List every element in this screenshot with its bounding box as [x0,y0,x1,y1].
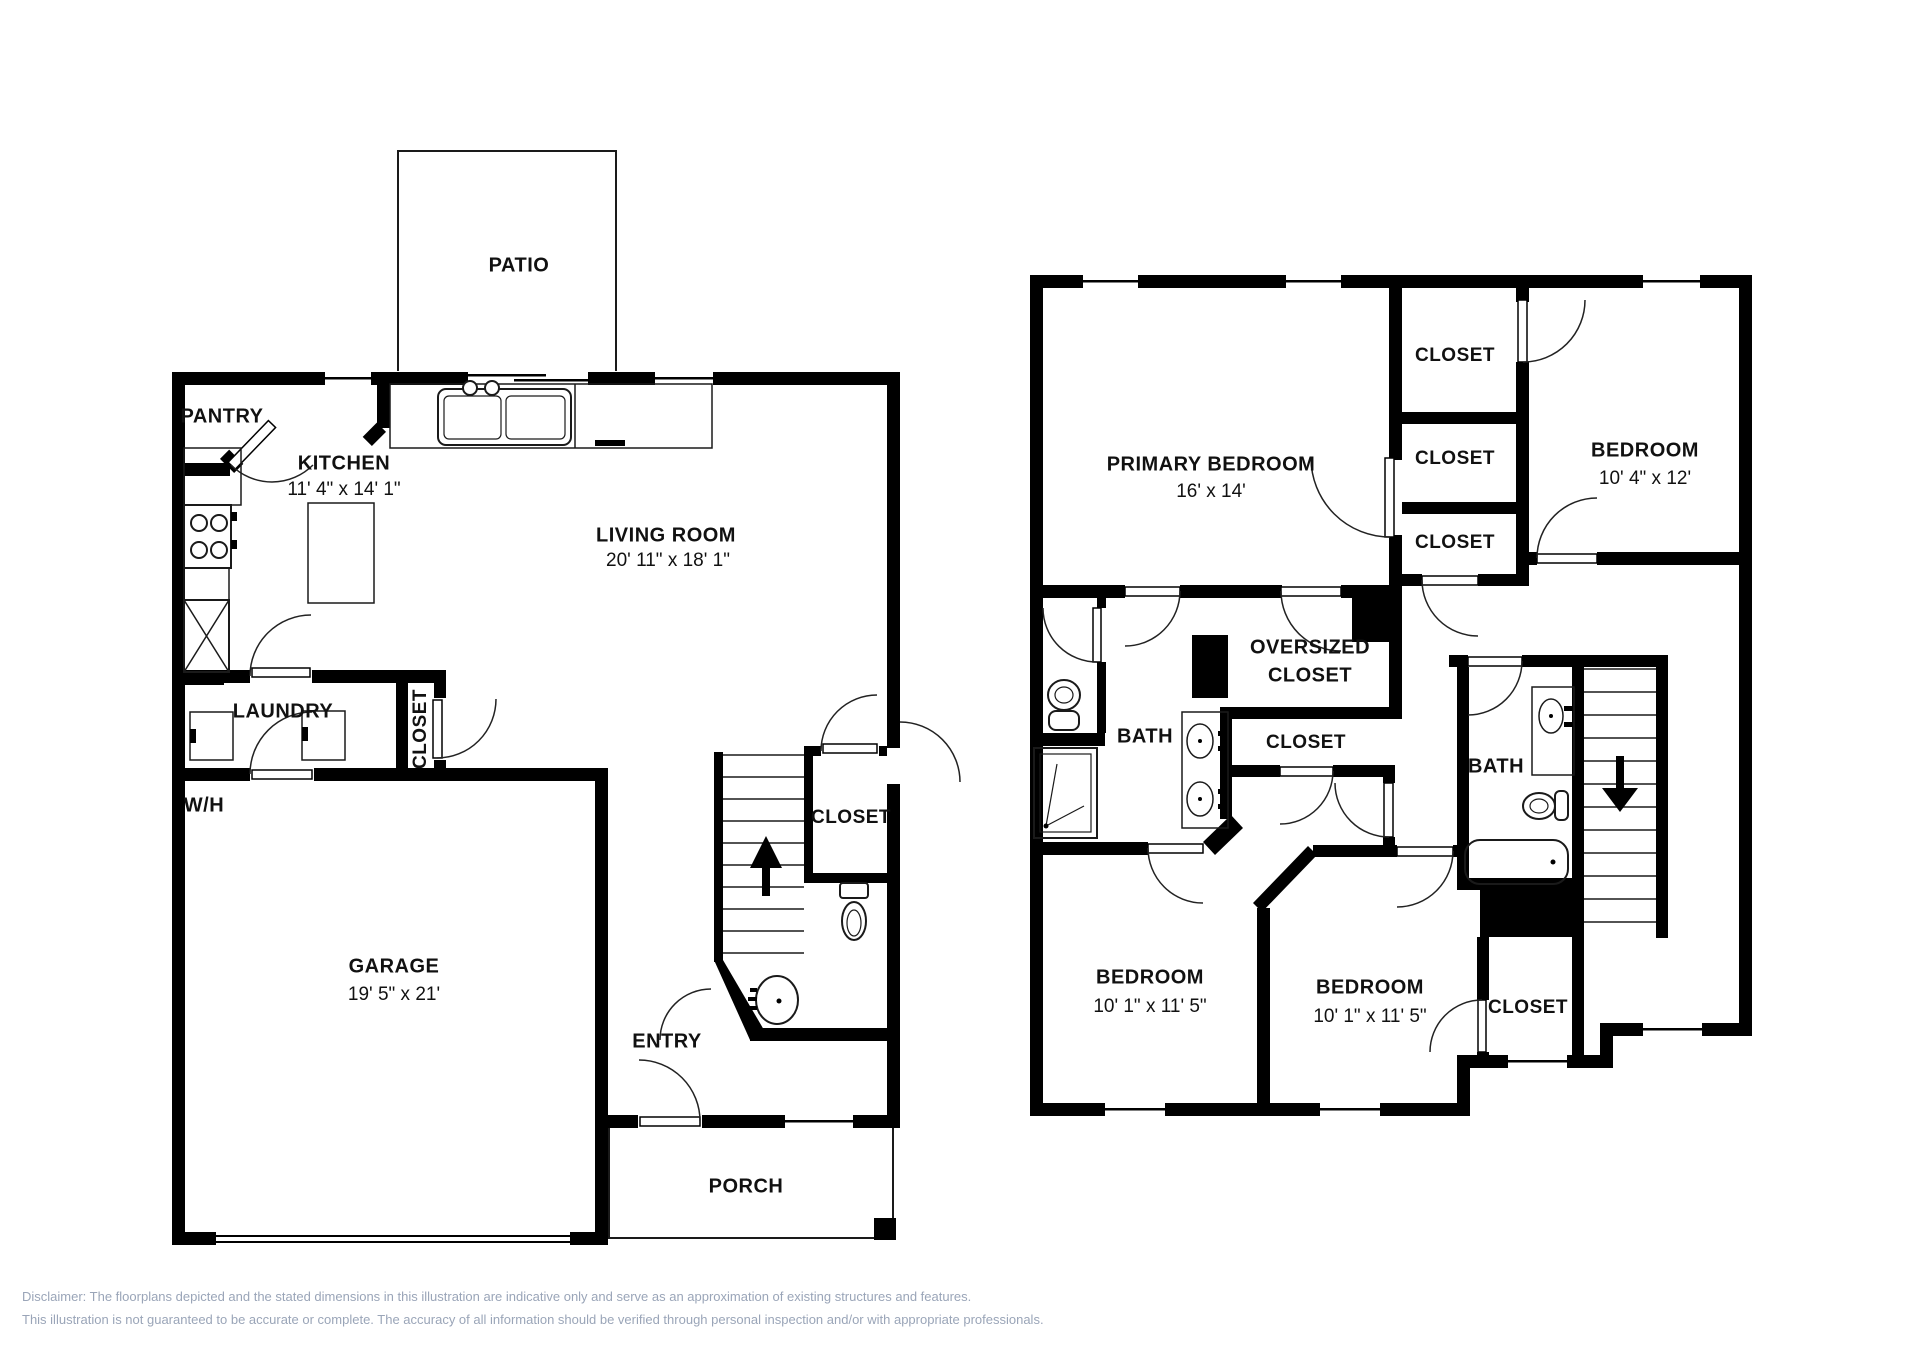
label-porch: PORCH [709,1176,784,1199]
label-kitchen: KITCHEN [298,453,390,476]
floor1-thin-outlines [398,151,893,1238]
label-oversized-closet-line1: OVERSIZED [1250,637,1370,660]
dims-bedroom-right: 10' 4" x 12' [1599,468,1691,490]
dims-living-room: 20' 11" x 18' 1" [606,550,730,572]
label-entry: ENTRY [632,1031,702,1054]
disclaimer-line2: This illustration is not guaranteed to b… [22,1312,1044,1327]
dims-bedroom-bottom-left: 10' 1" x 11' 5" [1093,996,1206,1018]
dims-garage: 19' 5" x 21' [348,984,440,1006]
label-closet1: CLOSET [1415,345,1495,367]
label-bedroom-bottom-mid: BEDROOM [1316,977,1424,1000]
label-stair-closet: CLOSET [811,807,891,829]
label-bath-left: BATH [1117,726,1173,749]
label-bedroom-right: BEDROOM [1591,440,1699,463]
dims-primary-bedroom: 16' x 14' [1176,481,1246,503]
label-oversized-closet-line2: CLOSET [1268,665,1352,688]
label-water-heater: W/H [184,795,224,818]
label-primary-bedroom: PRIMARY BEDROOM [1107,454,1316,477]
floor1-walls [172,372,900,1245]
label-living-room: LIVING ROOM [596,525,736,548]
label-closet2: CLOSET [1415,448,1495,470]
floorplan-page: PATIO PANTRY KITCHEN 11' 4" x 14' 1" LIV… [0,0,1920,1358]
label-bedroom-bottom-left: BEDROOM [1096,967,1204,990]
label-pantry: PANTRY [181,406,264,429]
dims-kitchen: 11' 4" x 14' 1" [287,479,400,501]
label-closet-mid: CLOSET [1266,732,1346,754]
floorplan-canvas [0,0,1920,1358]
disclaimer-line1: Disclaimer: The floorplans depicted and … [22,1289,971,1304]
label-bath-right: BATH [1468,756,1524,779]
label-laundry-closet: CLOSET [410,689,432,769]
label-patio: PATIO [489,255,550,278]
label-laundry: LAUNDRY [233,701,334,724]
label-closet3: CLOSET [1415,532,1495,554]
dims-bedroom-bottom-mid: 10' 1" x 11' 5" [1313,1006,1426,1028]
label-closet-bottom-right: CLOSET [1488,997,1568,1019]
label-garage: GARAGE [349,956,440,979]
